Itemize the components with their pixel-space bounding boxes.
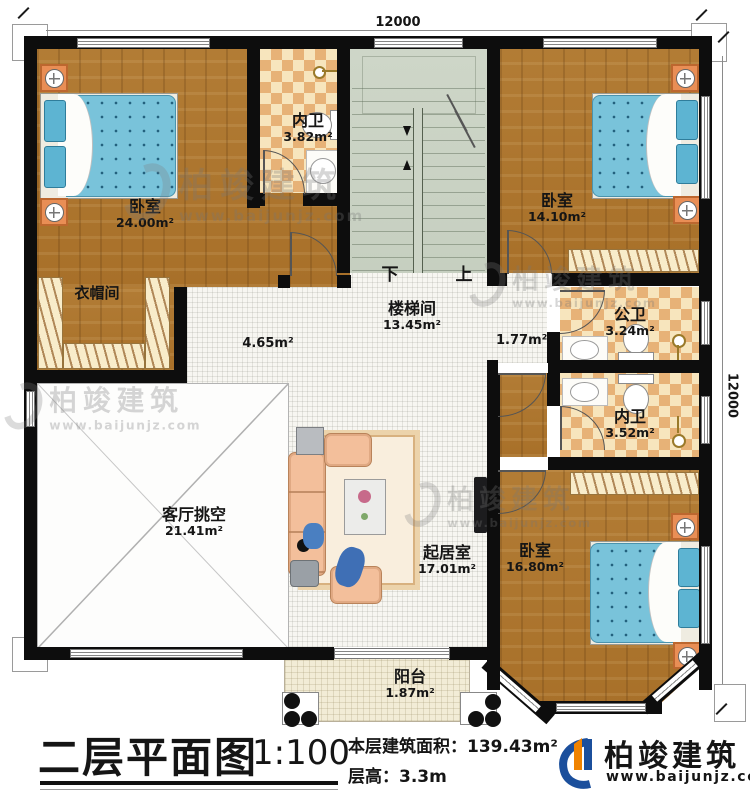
table-decor-flower (358, 490, 371, 503)
wall-bathroom1-left (247, 36, 260, 208)
building-area-label: 本层建筑面积： (348, 737, 467, 757)
floor-height-value: 3.3m (399, 767, 447, 787)
coffee-table (344, 479, 386, 535)
towel-bar-bathroom1 (322, 70, 337, 72)
room-label-bedroom3: 卧室 16.80m² (500, 542, 570, 575)
wall-bathroom3-left (547, 373, 560, 406)
window-bedroom3-right (701, 546, 710, 644)
wall-bedroom1-door-b (337, 275, 351, 288)
nightstand-bedroom1-b (40, 198, 68, 226)
window-bedroom2-top (543, 38, 657, 48)
wall-stair-left (337, 36, 350, 273)
towel-bar-bathroom3 (677, 416, 679, 433)
room-label-living: 起居室 17.01m² (412, 544, 482, 577)
lamp-icon (678, 201, 697, 220)
dim-line-right (722, 56, 723, 684)
door-leaf-bathroom1 (263, 150, 265, 194)
window-bathroom2-right (701, 301, 710, 345)
wall-cloak-right (174, 287, 187, 383)
stairs-arrow-down-icon (403, 126, 411, 136)
balcony-column-dot (485, 694, 501, 710)
title-underline-thin (40, 789, 338, 790)
door-leaf-bathroom3 (560, 406, 562, 450)
sink-bathroom1 (310, 158, 336, 184)
room-label-cloakroom: 衣帽间 (66, 285, 128, 302)
stairs-arrow-up-icon (403, 160, 411, 170)
nightstand-bedroom2-a (671, 64, 699, 92)
wall-bathroom1-bottom-a (247, 193, 265, 206)
room-label-bedroom2: 卧室 14.10m² (512, 192, 602, 225)
wardrobe-bedroom2 (568, 249, 699, 272)
wall-bedroom1-door-a (278, 275, 290, 288)
room-label-bathroom3: 内卫 3.52m² (592, 408, 668, 441)
wall-cloak-bottom (24, 370, 187, 383)
nightstand-bedroom1-a (40, 64, 68, 92)
plan-scale: 1:100 (252, 733, 350, 773)
window-bay-bottom (556, 703, 646, 712)
towel-ring-bathroom1 (313, 66, 326, 79)
building-area-value: 139.43m² (467, 737, 558, 757)
wardrobe-bedroom3 (570, 472, 699, 495)
pillow-bedroom1-a (44, 100, 66, 142)
person-sitting (303, 523, 324, 549)
wardrobe-cloak-bottom (63, 343, 145, 369)
plant-table (296, 427, 324, 455)
window-bathroom3-right (701, 396, 710, 444)
wall-bedroom2-bottom-b (552, 273, 712, 286)
nightstand-bedroom3-a (671, 513, 699, 540)
wall-bedroom3-left (487, 373, 500, 690)
side-table (290, 560, 319, 587)
door-leaf-bedroom1 (290, 232, 292, 276)
towel-ring-bathroom3 (672, 434, 686, 448)
balcony-column-dot (485, 711, 501, 727)
dim-tick-2 (695, 9, 707, 21)
room-label-balcony: 阳台 1.87m² (380, 668, 440, 701)
floor-plan-canvas: 12000 12000 (0, 0, 750, 801)
door-leaf-bedroom3 (498, 470, 546, 472)
lamp-icon (676, 69, 695, 88)
pillow-bedroom3-b (678, 589, 700, 628)
dim-tick-1 (17, 7, 29, 19)
wall-mid-a (487, 360, 498, 373)
wall-bedroom3-top-b (548, 457, 712, 470)
door-leaf-bedroom2 (507, 230, 509, 274)
window-left-small (26, 391, 35, 427)
building-area-line: 本层建筑面积：139.43m² (348, 732, 558, 757)
wall-left (24, 36, 37, 660)
room-label-bathroom1: 内卫 3.82m² (270, 112, 346, 145)
armchair-top (324, 433, 372, 467)
balcony-column-dot (301, 711, 317, 727)
lamp-icon (676, 518, 695, 537)
lamp-icon (45, 203, 64, 222)
dim-label-right: 12000 (725, 368, 740, 424)
window-bedroom1-top (77, 38, 210, 48)
stair-down-label: 下 (378, 266, 402, 286)
pillow-bedroom3-a (678, 548, 700, 587)
room-label-void: 客厅挑空 21.41m² (142, 506, 246, 539)
sink-bathroom3 (570, 382, 599, 402)
wall-bathroom2-left (547, 332, 560, 363)
door-leaf-bathroom2 (560, 290, 605, 292)
balcony-column-dot (284, 711, 300, 727)
brand-logo-icon (554, 734, 602, 790)
window-living-bottom (70, 649, 243, 658)
nightstand-bedroom2-b (673, 196, 701, 224)
floor-height-label: 层高： (348, 767, 399, 787)
dim-label-top: 12000 (370, 15, 426, 30)
dim-line-top (46, 30, 692, 31)
tv (474, 477, 487, 533)
balcony-column-dot (468, 711, 484, 727)
balcony-sliding-door (334, 648, 450, 659)
dim-box-bottom-right (714, 684, 746, 722)
balcony-column-dot (284, 693, 300, 709)
toilet-tank-bathroom3 (618, 374, 654, 384)
hall1-area-label: 4.65m² (240, 337, 296, 352)
lamp-icon (45, 69, 64, 88)
wall-stair-right (487, 36, 500, 273)
bed-fold-bedroom3 (648, 542, 681, 642)
pillow-bedroom2-a (676, 100, 698, 140)
title-underline-thick (40, 781, 338, 785)
hall2-area-label: 1.77m² (496, 334, 542, 349)
wardrobe-cloak-right (145, 277, 170, 369)
window-stair-top (374, 38, 463, 48)
room-label-bedroom1: 卧室 24.00m² (100, 198, 190, 231)
stair-up-label: 上 (452, 266, 476, 286)
pillow-bedroom2-b (676, 144, 698, 184)
pillow-bedroom1-b (44, 146, 66, 188)
window-bedroom2-right (701, 96, 710, 199)
room-label-stairwell: 楼梯间 13.45m² (362, 300, 462, 333)
sofa-main (288, 452, 326, 576)
sink-bathroom2 (570, 340, 599, 360)
floor-height-line: 层高：3.3m (348, 762, 447, 787)
plan-title: 二层平面图 (38, 724, 258, 785)
wall-bedroom2-bottom-a (487, 273, 507, 286)
brand-url: www.baijunjz.com (606, 769, 750, 785)
room-label-bathroom2: 公卫 3.24m² (592, 306, 668, 339)
towel-ring-bathroom2 (672, 334, 686, 348)
wall-mid-b (548, 360, 712, 373)
door-leaf-suite3 (498, 373, 546, 375)
wardrobe-cloak-left (38, 277, 63, 369)
stairs-handrail (413, 108, 423, 273)
